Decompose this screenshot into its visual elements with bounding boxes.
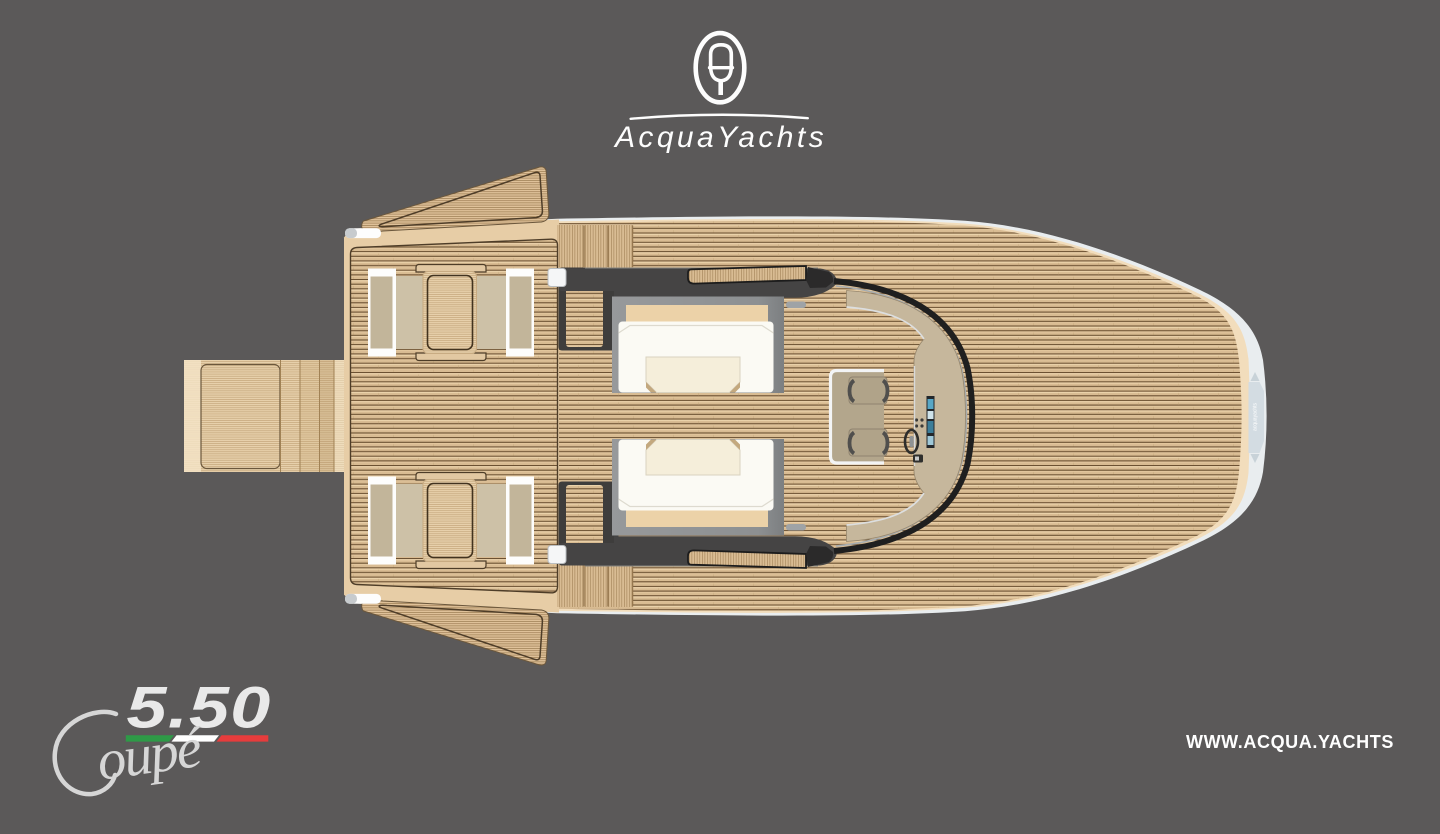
- svg-text:AcquaYachts: AcquaYachts: [613, 121, 827, 154]
- svg-text:WWW.ACQUA.YACHTS: WWW.ACQUA.YACHTS: [1186, 732, 1394, 752]
- svg-text:acquayachts: acquayachts: [1253, 402, 1259, 431]
